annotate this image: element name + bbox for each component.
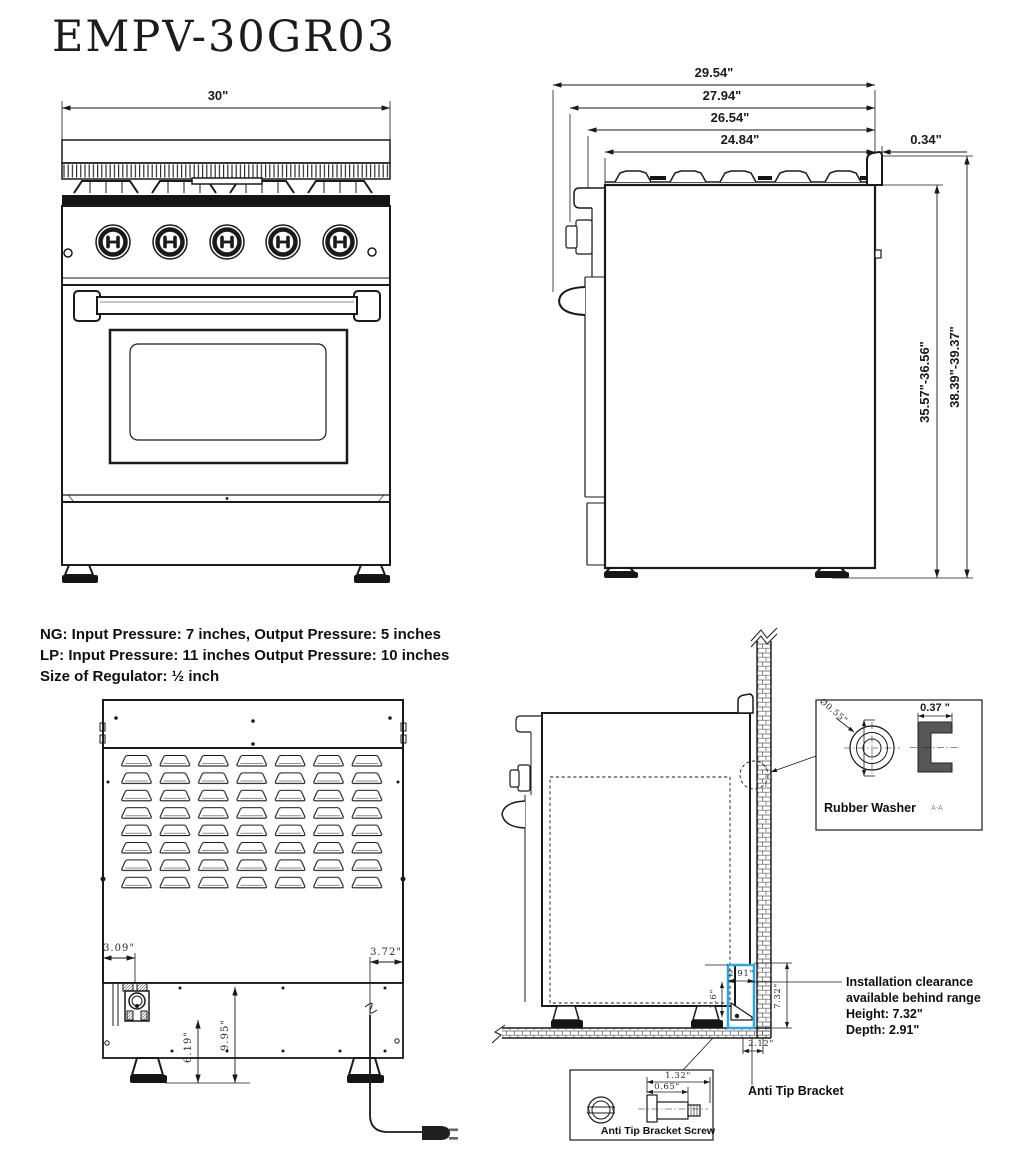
burner-grates [74, 178, 372, 193]
dim-height-outer: 38.39"-39.37" [947, 326, 962, 408]
side-feet [604, 568, 849, 578]
dim-26-54: 26.54" [711, 110, 750, 125]
installation-drawing: 2.91" 1.6" 7.32" 2.12" Installation clea… [480, 625, 1024, 1152]
spec-line-ng: NG: Input Pressure: 7 inches, Output Pre… [40, 624, 449, 645]
front-view-drawing: 30" [40, 85, 440, 595]
note-line-2: available behind range [846, 991, 981, 1005]
burner-knob [266, 225, 300, 259]
dim-2-91: 2.91" [728, 969, 754, 979]
front-width-dimension: 30" [62, 88, 390, 142]
spec-sheet: EMPV-30GR03 30" [0, 0, 1024, 1152]
dim-7-32: 7.32" [773, 983, 783, 1009]
note-line-4: Depth: 2.91" [846, 1023, 919, 1037]
anti-tip-screw-label: Anti Tip Bracket Screw [601, 1125, 716, 1137]
control-panel [62, 225, 390, 285]
note-line-1: Installation clearance [846, 975, 973, 989]
rubber-washer-detail: Ø0.55" 0.37 " Rubber Washer A-A [771, 696, 982, 830]
burner-knob [323, 225, 357, 259]
back-lip [738, 694, 753, 713]
back-view-drawing: 3.09" 3.72" 6.19" 9.95" [70, 685, 480, 1150]
dim-washer-thickness: 0.37 " [920, 702, 950, 714]
dim-0-34: 0.34" [910, 132, 941, 147]
side-grates [615, 171, 870, 182]
dim-29-54: 29.54" [695, 65, 734, 80]
oven-door [74, 291, 380, 463]
side-door-handle [559, 287, 585, 315]
rubber-washer-label: Rubber Washer [824, 801, 916, 815]
profile-handle [502, 801, 525, 828]
dim-screw-length: 1.32" [665, 1071, 691, 1081]
back-feet [130, 1058, 384, 1083]
page-title: EMPV-30GR03 [52, 12, 396, 62]
vent-louvers [120, 754, 389, 894]
dim-1-6: 1.6" [709, 989, 719, 1009]
dim-3-09: 3.09" [103, 943, 135, 954]
storage-drawer [62, 495, 390, 502]
dim-24-84: 24.84" [721, 132, 760, 147]
anti-tip-screw-detail: 1.32" 0.65" Anti Tip Bracket Screw [570, 1070, 716, 1140]
burner-knob [96, 225, 130, 259]
profile-knob [518, 765, 530, 791]
cooktop-front-edge [574, 188, 605, 208]
dim-9-95: 9.95" [220, 1019, 231, 1051]
anti-tip-bracket [731, 1003, 752, 1020]
door-handle [97, 297, 357, 314]
indicator-light [64, 249, 72, 257]
anti-tip-bracket-label: Anti Tip Bracket [748, 1084, 844, 1098]
dim-6-19: 6.19" [183, 1031, 194, 1063]
oven-knob [210, 225, 244, 259]
back-panel [100, 700, 406, 983]
dim-height-inner: 35.57"-36.56" [917, 341, 932, 423]
gas-inlet-stub [875, 250, 881, 258]
spec-line-lp: LP: Input Pressure: 11 inches Output Pre… [40, 645, 449, 666]
back-lip [867, 152, 882, 185]
indicator-light [368, 248, 376, 256]
side-view-drawing: 29.54" 27.94" 26.54" 24.84" 0.34" 35.57"… [530, 60, 1000, 590]
power-plug [422, 1126, 450, 1140]
front-width-dim-label: 30" [208, 88, 229, 103]
spec-line-regulator: Size of Regulator: ½ inch [40, 666, 449, 687]
range-side-outline [559, 152, 882, 568]
wall-break-symbol [751, 628, 777, 641]
gas-pressure-specs: NG: Input Pressure: 7 inches, Output Pre… [40, 624, 449, 687]
burner-knob [153, 225, 187, 259]
section-label: A-A [931, 805, 943, 812]
dim-27-94: 27.94" [703, 88, 742, 103]
gas-connection-bracket [113, 983, 149, 1026]
dim-screw-shank: 0.65" [654, 1082, 680, 1092]
side-knob [576, 220, 592, 254]
front-feet [62, 565, 390, 583]
dim-3-72: 3.72" [370, 947, 402, 958]
note-line-3: Height: 7.32" [846, 1007, 923, 1021]
